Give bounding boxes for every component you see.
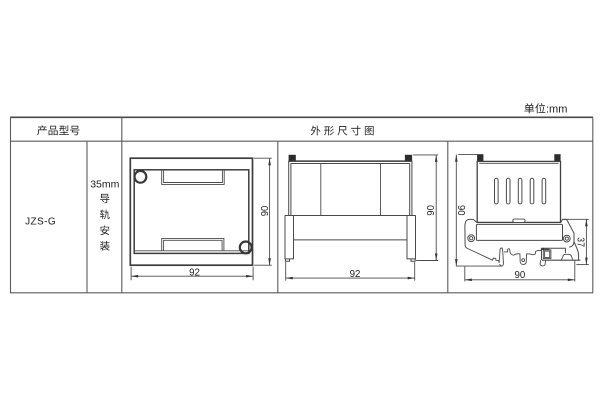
- svg-text:JZS-G: JZS-G: [25, 216, 56, 227]
- svg-text:90: 90: [515, 269, 526, 281]
- svg-text:35mm: 35mm: [90, 178, 119, 190]
- svg-text:92: 92: [189, 267, 200, 279]
- svg-text:92: 92: [350, 268, 361, 280]
- svg-text:90: 90: [425, 205, 437, 216]
- svg-text::mm: :mm: [546, 104, 567, 116]
- svg-text:37: 37: [575, 237, 587, 247]
- svg-text:90: 90: [259, 206, 271, 217]
- svg-text:90: 90: [455, 205, 467, 216]
